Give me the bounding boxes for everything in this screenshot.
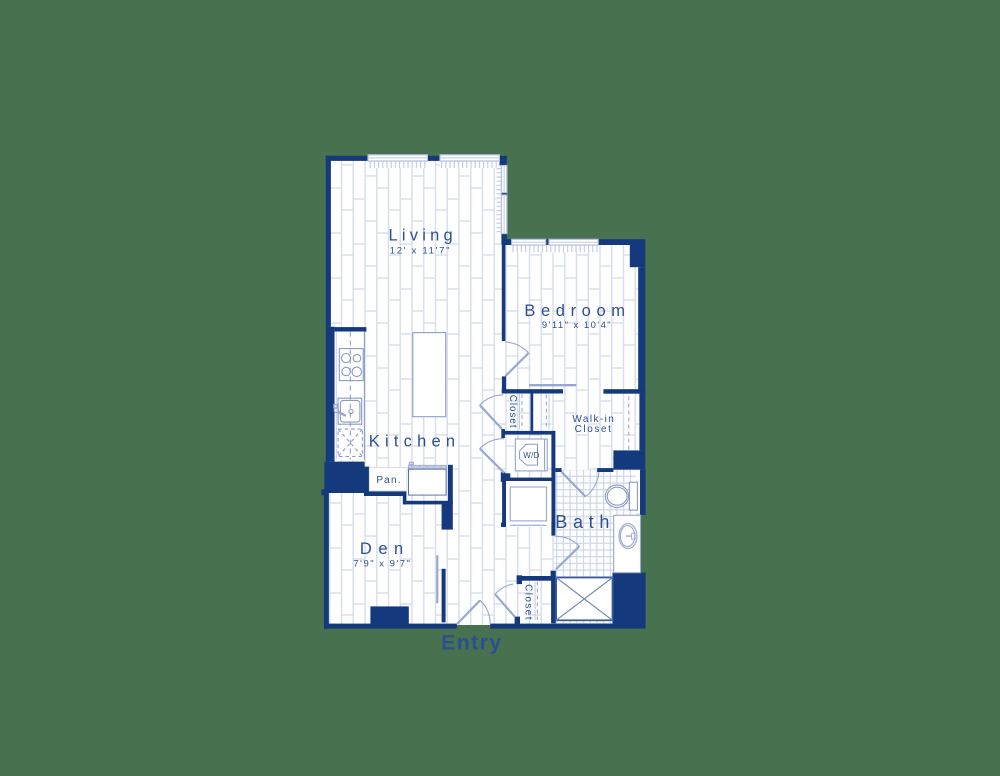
svg-text:7'9" x 9'7": 7'9" x 9'7" — [353, 558, 411, 569]
svg-text:Closet: Closet — [523, 584, 534, 621]
svg-text:Bath: Bath — [555, 512, 615, 532]
svg-text:Bedroom: Bedroom — [524, 302, 630, 320]
svg-text:Pan.: Pan. — [376, 475, 401, 486]
svg-text:Kitchen: Kitchen — [369, 432, 460, 450]
svg-text:Den: Den — [360, 540, 410, 558]
svg-text:Living: Living — [389, 226, 457, 244]
svg-text:Closet: Closet — [575, 424, 613, 435]
svg-text:9'11" x 10'4": 9'11" x 10'4" — [542, 320, 612, 331]
svg-text:12' x 11'7": 12' x 11'7" — [390, 245, 451, 256]
svg-text:Entry: Entry — [441, 631, 502, 655]
svg-text:Walk-in: Walk-in — [572, 414, 615, 425]
svg-text:W/D: W/D — [523, 451, 539, 460]
svg-text:Closet: Closet — [507, 395, 518, 429]
